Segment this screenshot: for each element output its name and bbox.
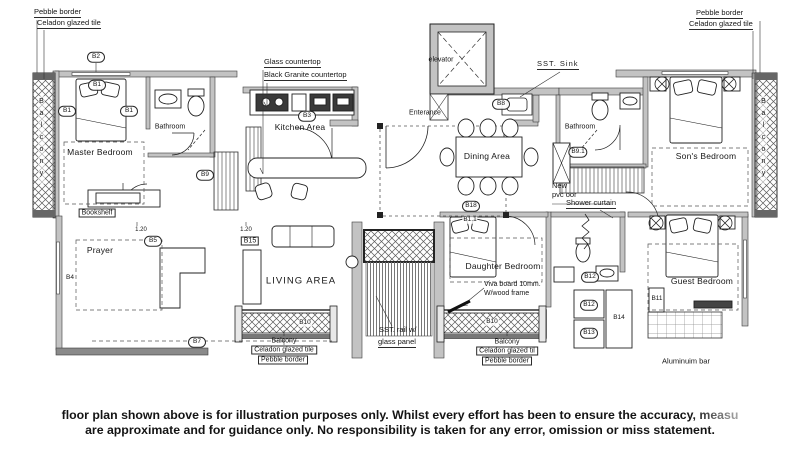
label-balcony-left-vertical: Balcony: [38, 96, 45, 184]
tag-b1-headboard: B1: [88, 80, 106, 91]
callout-pebble-br: Pebble border: [482, 357, 532, 366]
label-bathroom-right: Bathroom: [565, 124, 595, 131]
callout-celadon-br: Celadon glazed til: [476, 347, 538, 356]
callout-pebble-bl: Pebble border: [258, 356, 308, 365]
edge-fade: [690, 408, 800, 428]
label-daughter-bedroom: Daughter Bedroom: [465, 262, 540, 271]
plan-linework: [0, 0, 800, 410]
callout-balcony-br: Balcony: [495, 339, 520, 346]
label-kitchen-area: Kitchen Area: [275, 123, 326, 132]
tag-b1-left: B1: [58, 106, 76, 117]
tag-b12-mid: B12: [580, 300, 598, 311]
label-bathroom-left: Bathroom: [155, 124, 185, 131]
disclaimer-text: floor plan shown above is for illustrati…: [0, 408, 800, 439]
label-balcony-right-vertical: Balcony: [760, 96, 767, 184]
callout-sst-rail-line2: glass panel: [378, 338, 416, 348]
callout-sst-rail-line1: SST. rail w/: [379, 326, 417, 334]
callout-aluminium-bar: Aluminuim bar: [662, 357, 710, 365]
tag-b5: B5: [144, 236, 162, 247]
center-planter-and-screen: [364, 230, 434, 336]
label-entrance: Enterance: [409, 110, 441, 117]
tag-b10-left: B10: [298, 320, 312, 327]
callout-viva-board-line1: Viva board 10mm.: [484, 281, 541, 288]
tag-b9: B9: [196, 170, 214, 181]
tag-b1-1: B1.1: [462, 217, 477, 224]
label-guest-bedroom: Guest Bedroom: [671, 277, 733, 286]
label-sons-bedroom: Son's Bedroom: [676, 152, 736, 161]
label-prayer: Prayer: [87, 246, 113, 255]
dimension-1-20-left: 1.20: [135, 227, 147, 233]
disclaimer-line2: are approximate and for guidance only. N…: [0, 423, 800, 438]
callout-pebble-border-tr: Pebble border: [696, 9, 743, 19]
living-furniture: [243, 226, 358, 304]
tag-b18: B18: [462, 201, 480, 212]
elevator-shaft: [430, 24, 494, 120]
label-dining-area: Dining Area: [464, 152, 510, 161]
callout-glass-countertop: Glass countertop: [264, 58, 321, 68]
callout-celadon-tile-tr: Celadon glazed tile: [689, 20, 753, 30]
tag-b10-right: B10: [485, 319, 499, 326]
tag-b15: B15: [241, 237, 259, 246]
callout-viva-board-line2: W/wood frame: [484, 290, 529, 297]
kitchen-counter: [248, 90, 366, 201]
callout-balcony-bl: Balcony: [272, 338, 297, 345]
label-master-bedroom: Master Bedroom: [67, 148, 133, 157]
tag-b1-right: B1: [120, 106, 138, 117]
callout-new-pvc-line1: New: [552, 182, 567, 190]
tag-b12-top: B12: [581, 272, 599, 283]
callout-pebble-border-tl: Pebble border: [34, 8, 81, 18]
callout-celadon-bl: Celadon glazed tile: [251, 346, 317, 355]
callout-sst-sink: SST. Sink: [537, 60, 579, 70]
tag-b9-1: B9.1: [568, 147, 587, 158]
tag-b7: B7: [188, 337, 206, 348]
tag-b14: B14: [612, 315, 626, 322]
tag-b4: B4: [65, 275, 75, 282]
floor-plan-drawing: Pebble border Celadon glazed tile Pebble…: [0, 0, 800, 410]
callout-shower-curtain: Shower curtain: [566, 199, 616, 209]
label-living-area: LIVING AREA: [266, 276, 336, 286]
callout-bookshelf: Bookshelf: [79, 209, 116, 218]
callout-celadon-tile-tl: Celadon glazed tile: [37, 19, 101, 29]
callout-black-granite-countertop: Black Granite countertop: [264, 71, 347, 81]
tag-b2: B2: [87, 52, 105, 63]
label-elevator: elevator: [429, 57, 454, 64]
floor-plan-page: Pebble border Celadon glazed tile Pebble…: [0, 0, 800, 450]
bathroom-left-fixtures: [155, 89, 204, 116]
tag-b13: B13: [580, 328, 598, 339]
tag-b11: B11: [650, 296, 663, 303]
dimension-1-20-right: 1.20: [240, 227, 252, 233]
tag-b3: B3: [298, 111, 316, 122]
disclaimer-line1: floor plan shown above is for illustrati…: [0, 408, 800, 423]
tag-b8: B8: [492, 99, 510, 110]
